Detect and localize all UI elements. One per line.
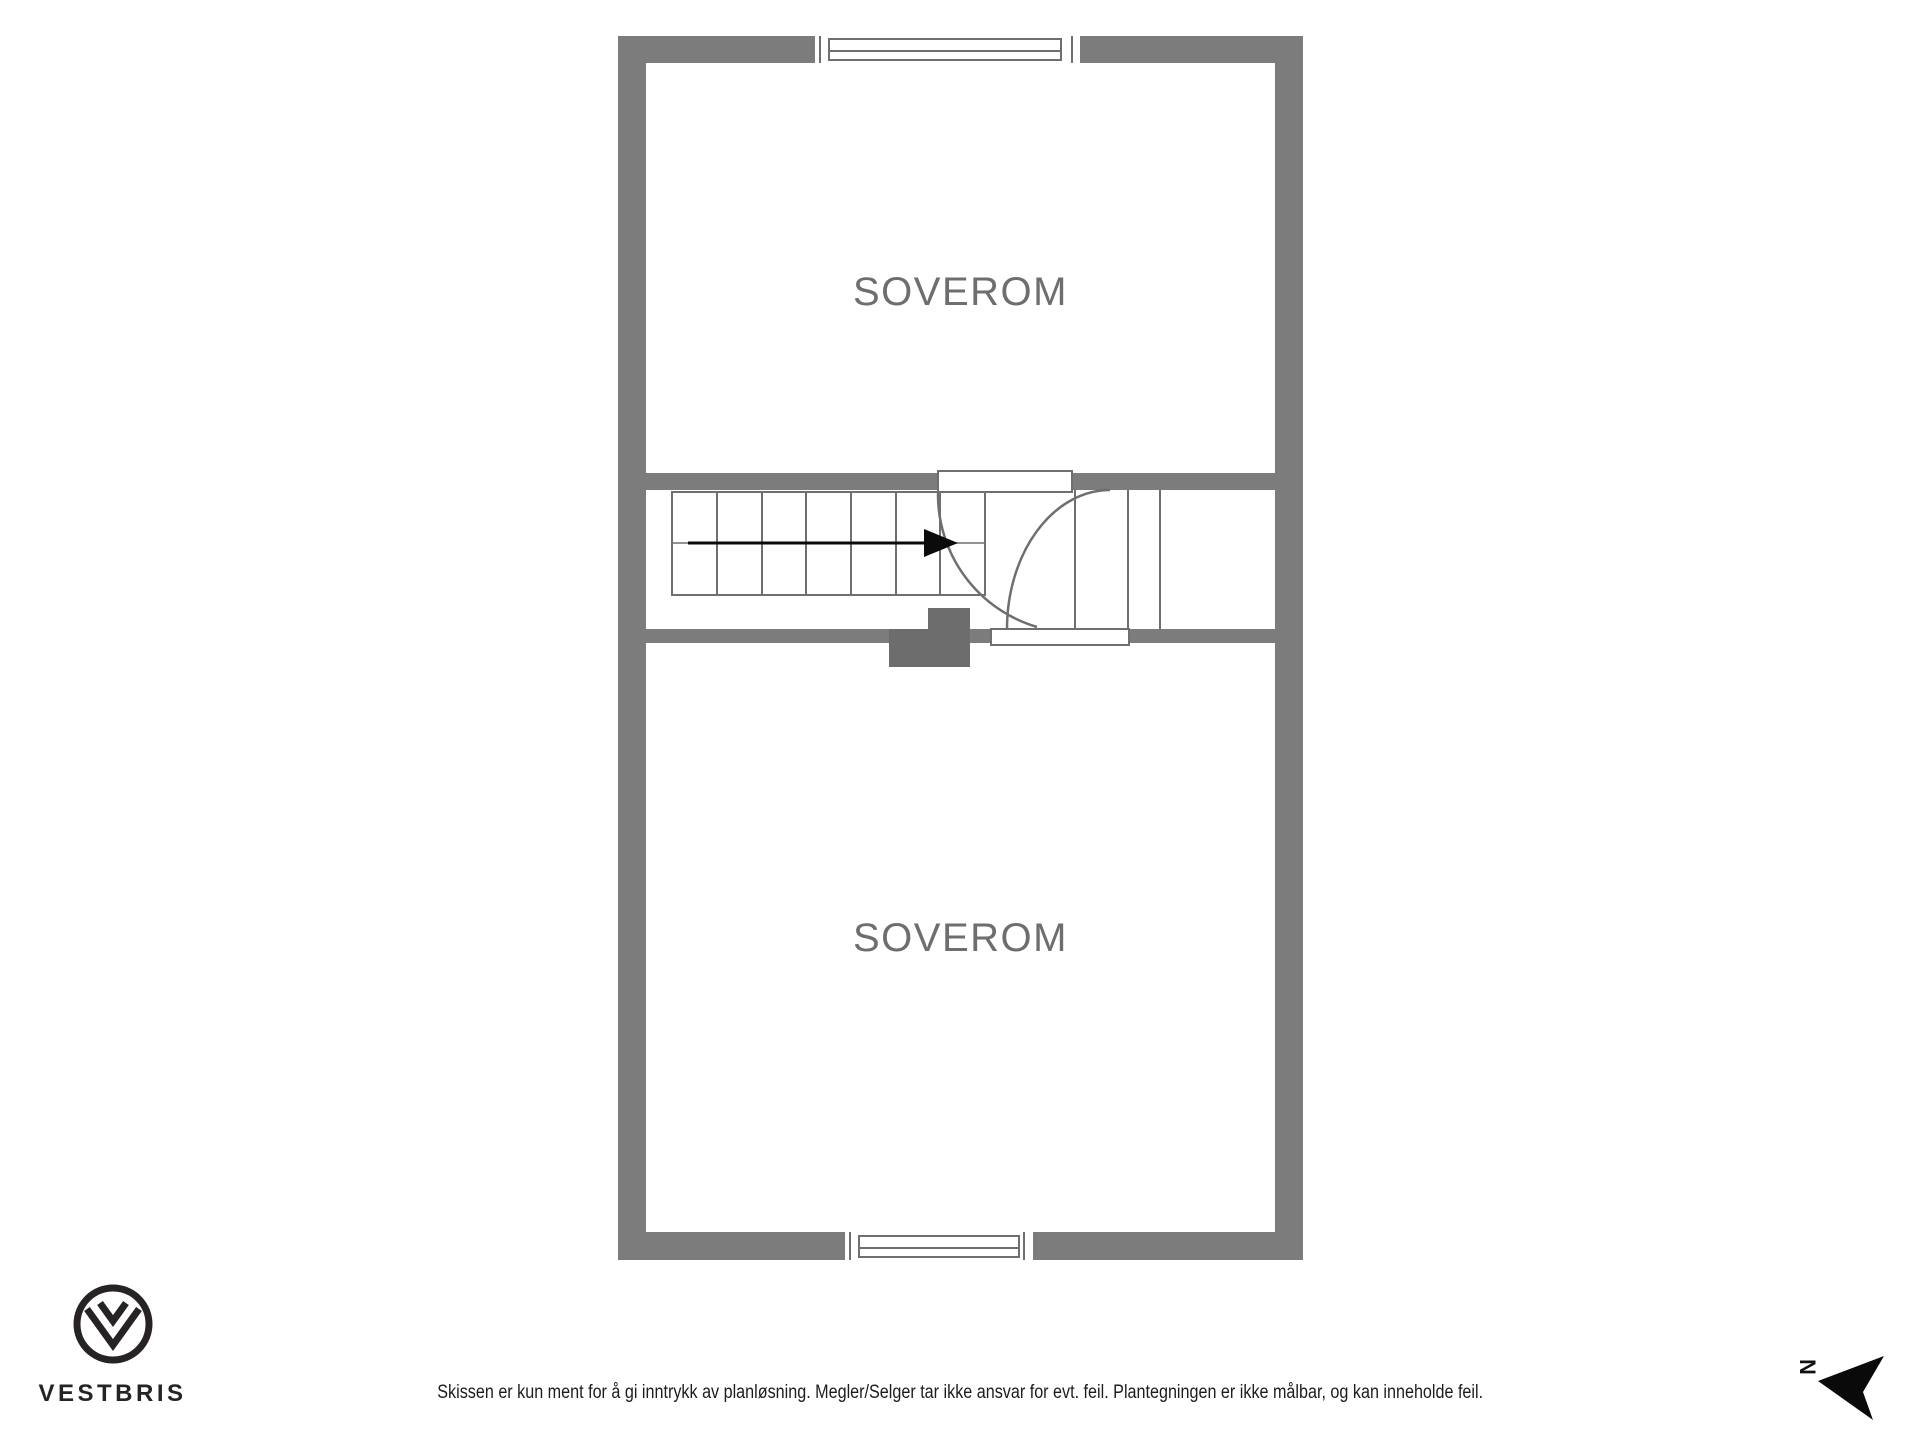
room-label-bottom: SOVEROM	[646, 915, 1275, 961]
door-swing-arc	[938, 493, 1037, 627]
stair-winder-run	[1075, 490, 1160, 629]
disclaimer-text: Skissen er kun ment for å gi inntrykk av…	[0, 1382, 1920, 1404]
room-label-top: SOVEROM	[646, 269, 1275, 315]
stair-winder-curve	[1007, 490, 1110, 629]
north-indicator: N	[1790, 1346, 1900, 1436]
vestbris-logo-icon	[70, 1281, 156, 1367]
north-arrow-icon	[1810, 1346, 1900, 1436]
stair-direction-arrow-icon	[688, 529, 958, 557]
staircase	[0, 0, 1920, 1440]
